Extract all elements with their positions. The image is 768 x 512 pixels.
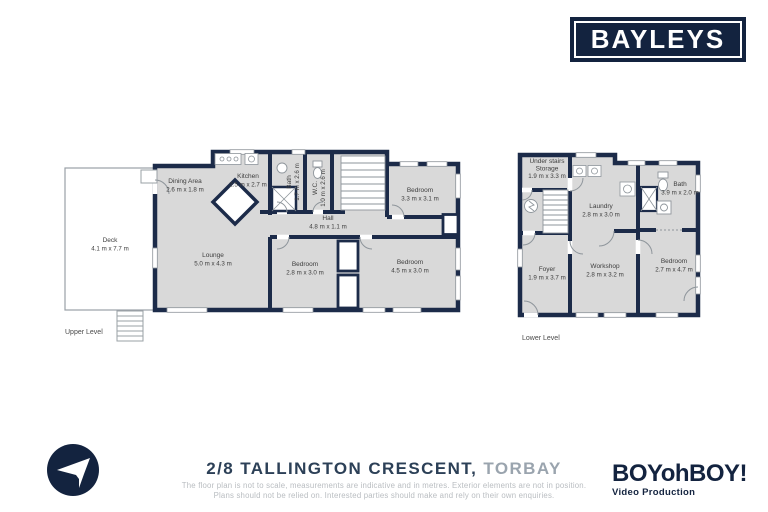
upper-level-caption: Upper Level (65, 329, 103, 336)
deck-step (141, 170, 157, 183)
svg-text:3.9 m x 2.0 m: 3.9 m x 2.0 m (661, 190, 698, 197)
svg-text:3.3 m x 3.1 m: 3.3 m x 3.1 m (401, 196, 438, 203)
svg-text:4.1 m x 7.7 m: 4.1 m x 7.7 m (91, 246, 128, 253)
address-suburb: TORBAY (483, 459, 561, 478)
deck-stairs-icon (117, 311, 143, 341)
svg-text:2.6 m x 1.8 m: 2.6 m x 1.8 m (166, 187, 203, 194)
svg-text:Dining Area: Dining Area (168, 178, 202, 185)
svg-text:Bath: Bath (286, 175, 293, 189)
boyohboy-logo: BOYohBOY! Video Production (612, 462, 747, 498)
room-label-workshop: Workshop 2.8 m x 3.2 m (586, 263, 623, 279)
svg-text:4.8 m x 1.1 m: 4.8 m x 1.1 m (309, 224, 346, 231)
kitchen-appliances-icon (215, 154, 258, 165)
boyohboy-logo-text: BOYohBOY! (612, 462, 747, 486)
bayleys-logo-text: BAYLEYS (574, 21, 742, 58)
lower-level-caption: Lower Level (522, 335, 560, 342)
svg-text:4.5 m x 3.0 m: 4.5 m x 3.0 m (391, 268, 428, 275)
svg-text:Under stairs: Under stairs (529, 158, 565, 165)
svg-text:Bath: Bath (673, 181, 687, 188)
svg-text:Laundry: Laundry (589, 203, 613, 210)
svg-text:2.8 m x 3.0 m: 2.8 m x 3.0 m (286, 270, 323, 277)
toilet-icon (658, 172, 668, 191)
lower-level-floor-plan: Under stairs Storage 1.9 m x 3.3 m Laund… (510, 145, 710, 345)
room-label-bedroom-right: Bedroom 4.5 m x 3.0 m (391, 259, 428, 275)
address-street: 2/8 TALLINGTON CRESCENT, (206, 459, 477, 478)
svg-text:1.0 m x 2.6 m: 1.0 m x 2.6 m (320, 169, 327, 206)
floor-plan-page: BAYLEYS (0, 0, 768, 512)
svg-text:Kitchen: Kitchen (237, 173, 259, 180)
stairs-icon (543, 190, 568, 233)
svg-text:1.7 m x 2.6 m: 1.7 m x 2.6 m (294, 163, 301, 200)
room-label-dining: Dining Area 2.6 m x 1.8 m (166, 178, 203, 194)
svg-text:2.8 m x 3.2 m: 2.8 m x 3.2 m (586, 272, 623, 279)
svg-text:W.C.: W.C. (312, 181, 319, 195)
room-label-bedroom-top: Bedroom 3.3 m x 3.1 m (401, 187, 438, 203)
svg-text:1.9 m x 3.3 m: 1.9 m x 3.3 m (528, 173, 565, 180)
svg-text:1.9 m x 3.7 m: 1.9 m x 3.7 m (528, 275, 565, 282)
svg-text:Hall: Hall (322, 215, 334, 222)
svg-text:2.8 m x 3.0 m: 2.8 m x 3.0 m (582, 212, 619, 219)
svg-text:2.5 m x 2.7 m: 2.5 m x 2.7 m (229, 182, 266, 189)
svg-text:Bedroom: Bedroom (292, 261, 318, 268)
svg-text:Storage: Storage (536, 166, 559, 173)
upper-level-floor-plan: Deck 4.1 m x 7.7 m Dining Area 2.6 m x 1… (55, 140, 465, 350)
stairs-icon (341, 156, 385, 210)
deck-outline (65, 168, 155, 341)
svg-text:Workshop: Workshop (590, 263, 620, 270)
boyohboy-logo-subtext: Video Production (612, 487, 747, 498)
svg-text:5.0 m x 4.3 m: 5.0 m x 4.3 m (194, 261, 231, 268)
bayleys-logo: BAYLEYS (570, 17, 746, 62)
basin-icon (657, 201, 671, 214)
room-label-bedroom: Bedroom 2.7 m x 4.7 m (655, 258, 692, 274)
svg-text:Bedroom: Bedroom (407, 187, 433, 194)
svg-text:Foyer: Foyer (539, 266, 556, 273)
room-label-bedroom-mid: Bedroom 2.8 m x 3.0 m (286, 261, 323, 277)
svg-text:Bedroom: Bedroom (661, 258, 687, 265)
svg-text:2.7 m x 4.7 m: 2.7 m x 4.7 m (655, 267, 692, 274)
svg-text:Deck: Deck (103, 237, 119, 244)
basin-icon (277, 163, 287, 173)
svg-text:Bedroom: Bedroom (397, 259, 423, 266)
electrical-panel-icon (525, 200, 538, 213)
svg-text:Lounge: Lounge (202, 252, 224, 259)
